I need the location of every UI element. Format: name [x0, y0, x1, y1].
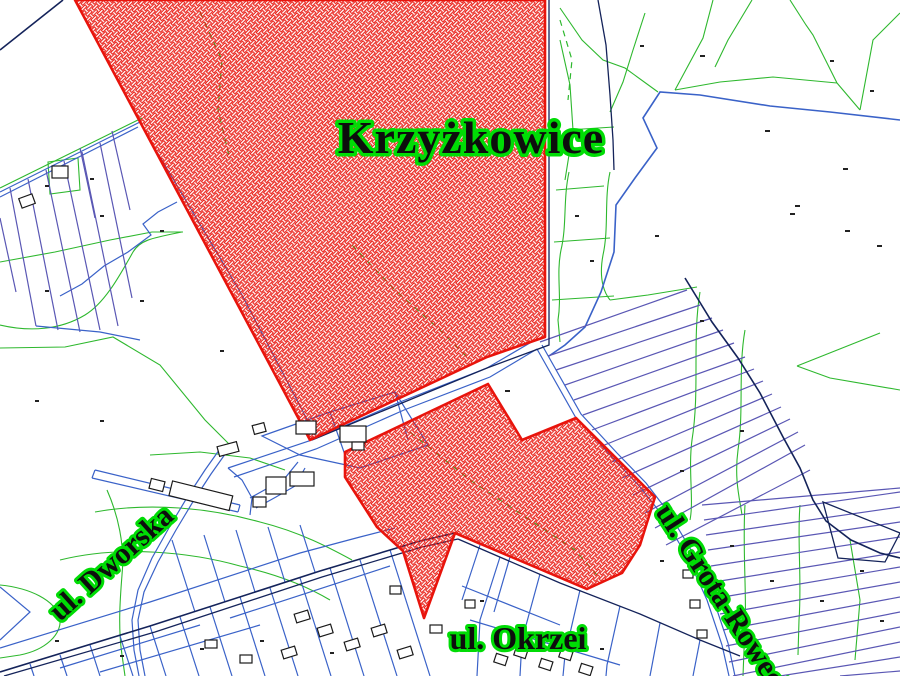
highlight-area-upper	[75, 0, 545, 440]
street-label-okrzei: ul. Okrzei	[450, 620, 587, 656]
cadastral-map-canvas: Krzyżkowice ul. Dworska ul. Okrzei ul. G…	[0, 0, 900, 676]
cadastral-map-page: Krzyżkowice ul. Dworska ul. Okrzei ul. G…	[0, 0, 900, 676]
highlight-area-lower	[345, 384, 655, 618]
region-label-krzyzkowice: Krzyżkowice	[338, 112, 604, 163]
street-label-grota-roweckiego: ul. Grota-Roweckiego	[649, 498, 829, 676]
street-label-dworska: ul. Dworska	[43, 499, 180, 627]
